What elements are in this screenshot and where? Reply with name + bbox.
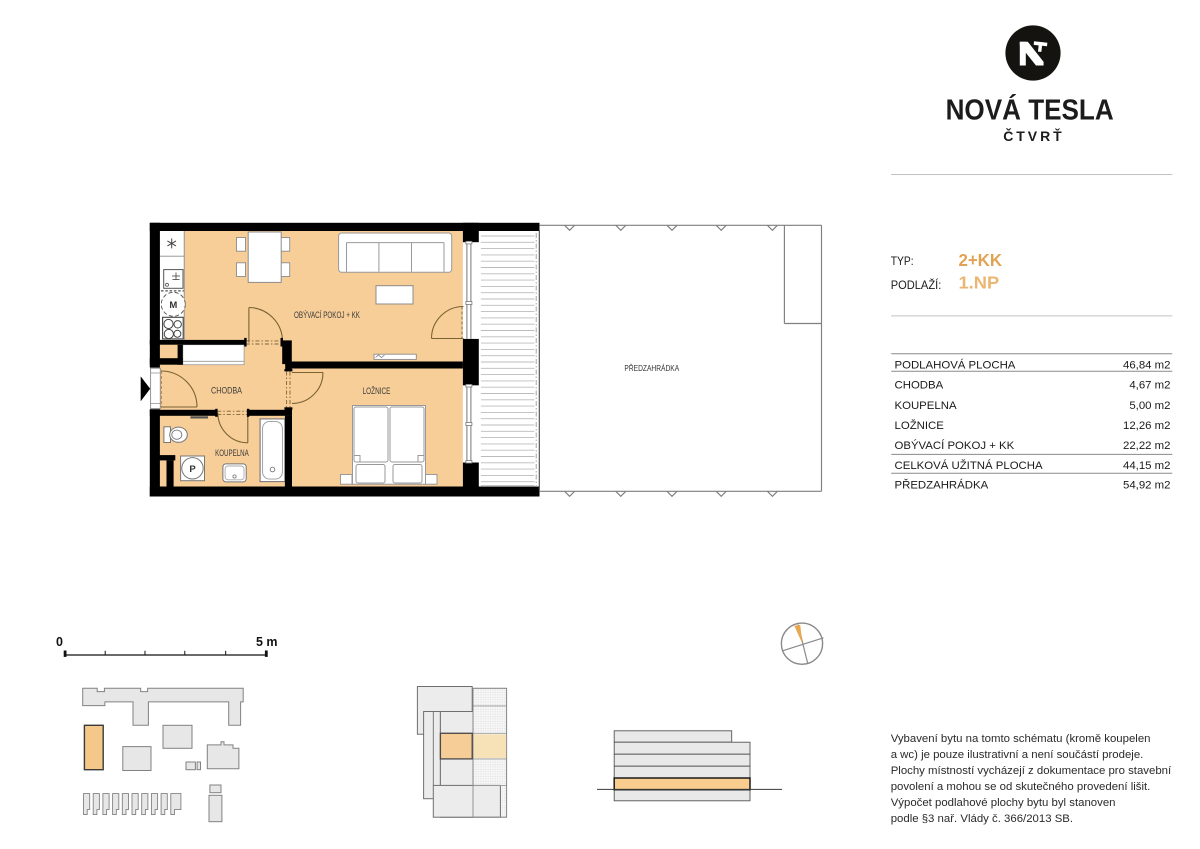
- svg-text:povolení a mohou se od skutečn: povolení a mohou se od skutečného proved…: [891, 781, 1151, 793]
- svg-text:a wc) je pouze ilustrativní a: a wc) je pouze ilustrativní a není součá…: [891, 749, 1144, 761]
- svg-text:Vybavení bytu na tomto schémat: Vybavení bytu na tomto schématu (kromě k…: [891, 733, 1151, 745]
- svg-text:54,92 m2: 54,92 m2: [1123, 479, 1171, 491]
- svg-text:1.NP: 1.NP: [959, 272, 1000, 292]
- svg-text:5,00 m2: 5,00 m2: [1129, 400, 1170, 412]
- svg-text:PŘEDZAHRÁDKA: PŘEDZAHRÁDKA: [624, 364, 679, 373]
- svg-text:OBÝVACÍ POKOJ + KK: OBÝVACÍ POKOJ + KK: [895, 439, 1015, 452]
- svg-text:Výpočet podlahové plochy bytu: Výpočet podlahové plochy bytu byl stanov…: [891, 797, 1116, 809]
- svg-text:2+KK: 2+KK: [959, 250, 1003, 270]
- svg-text:ČTVRŤ: ČTVRŤ: [1003, 127, 1065, 144]
- svg-text:LOŽNICE: LOŽNICE: [895, 419, 945, 432]
- svg-text:PŘEDZAHRÁDKA: PŘEDZAHRÁDKA: [895, 478, 989, 491]
- svg-text:Plochy místností vycházejí z d: Plochy místností vycházejí z dokumentace…: [891, 765, 1172, 777]
- svg-text:KOUPELNA: KOUPELNA: [895, 400, 957, 412]
- svg-text:0: 0: [56, 635, 63, 649]
- svg-text:CHODBA: CHODBA: [895, 379, 944, 391]
- svg-text:44,15 m2: 44,15 m2: [1123, 460, 1171, 472]
- svg-text:TYP:: TYP:: [891, 254, 914, 268]
- svg-text:CELKOVÁ UŽITNÁ PLOCHA: CELKOVÁ UŽITNÁ PLOCHA: [895, 459, 1044, 472]
- svg-text:12,26 m2: 12,26 m2: [1123, 420, 1171, 432]
- svg-text:P: P: [189, 464, 196, 475]
- svg-text:PODLAHOVÁ PLOCHA: PODLAHOVÁ PLOCHA: [895, 358, 1016, 371]
- svg-text:LOŽNICE: LOŽNICE: [363, 386, 391, 396]
- svg-text:podle §3 nař. Vlády č. 366/201: podle §3 nař. Vlády č. 366/2013 SB.: [891, 813, 1073, 825]
- svg-text:NOVÁ TESLA: NOVÁ TESLA: [946, 94, 1114, 126]
- svg-text:M: M: [169, 300, 177, 311]
- svg-text:PODLAŽÍ:: PODLAŽÍ:: [891, 277, 942, 292]
- svg-text:4,67 m2: 4,67 m2: [1129, 379, 1170, 391]
- svg-text:46,84 m2: 46,84 m2: [1123, 359, 1171, 371]
- svg-text:22,22 m2: 22,22 m2: [1123, 440, 1171, 452]
- svg-text:CHODBA: CHODBA: [211, 386, 242, 396]
- svg-text:KOUPELNA: KOUPELNA: [215, 448, 249, 458]
- svg-text:5 m: 5 m: [256, 635, 278, 649]
- svg-text:OBÝVACÍ POKOJ + KK: OBÝVACÍ POKOJ + KK: [294, 310, 360, 320]
